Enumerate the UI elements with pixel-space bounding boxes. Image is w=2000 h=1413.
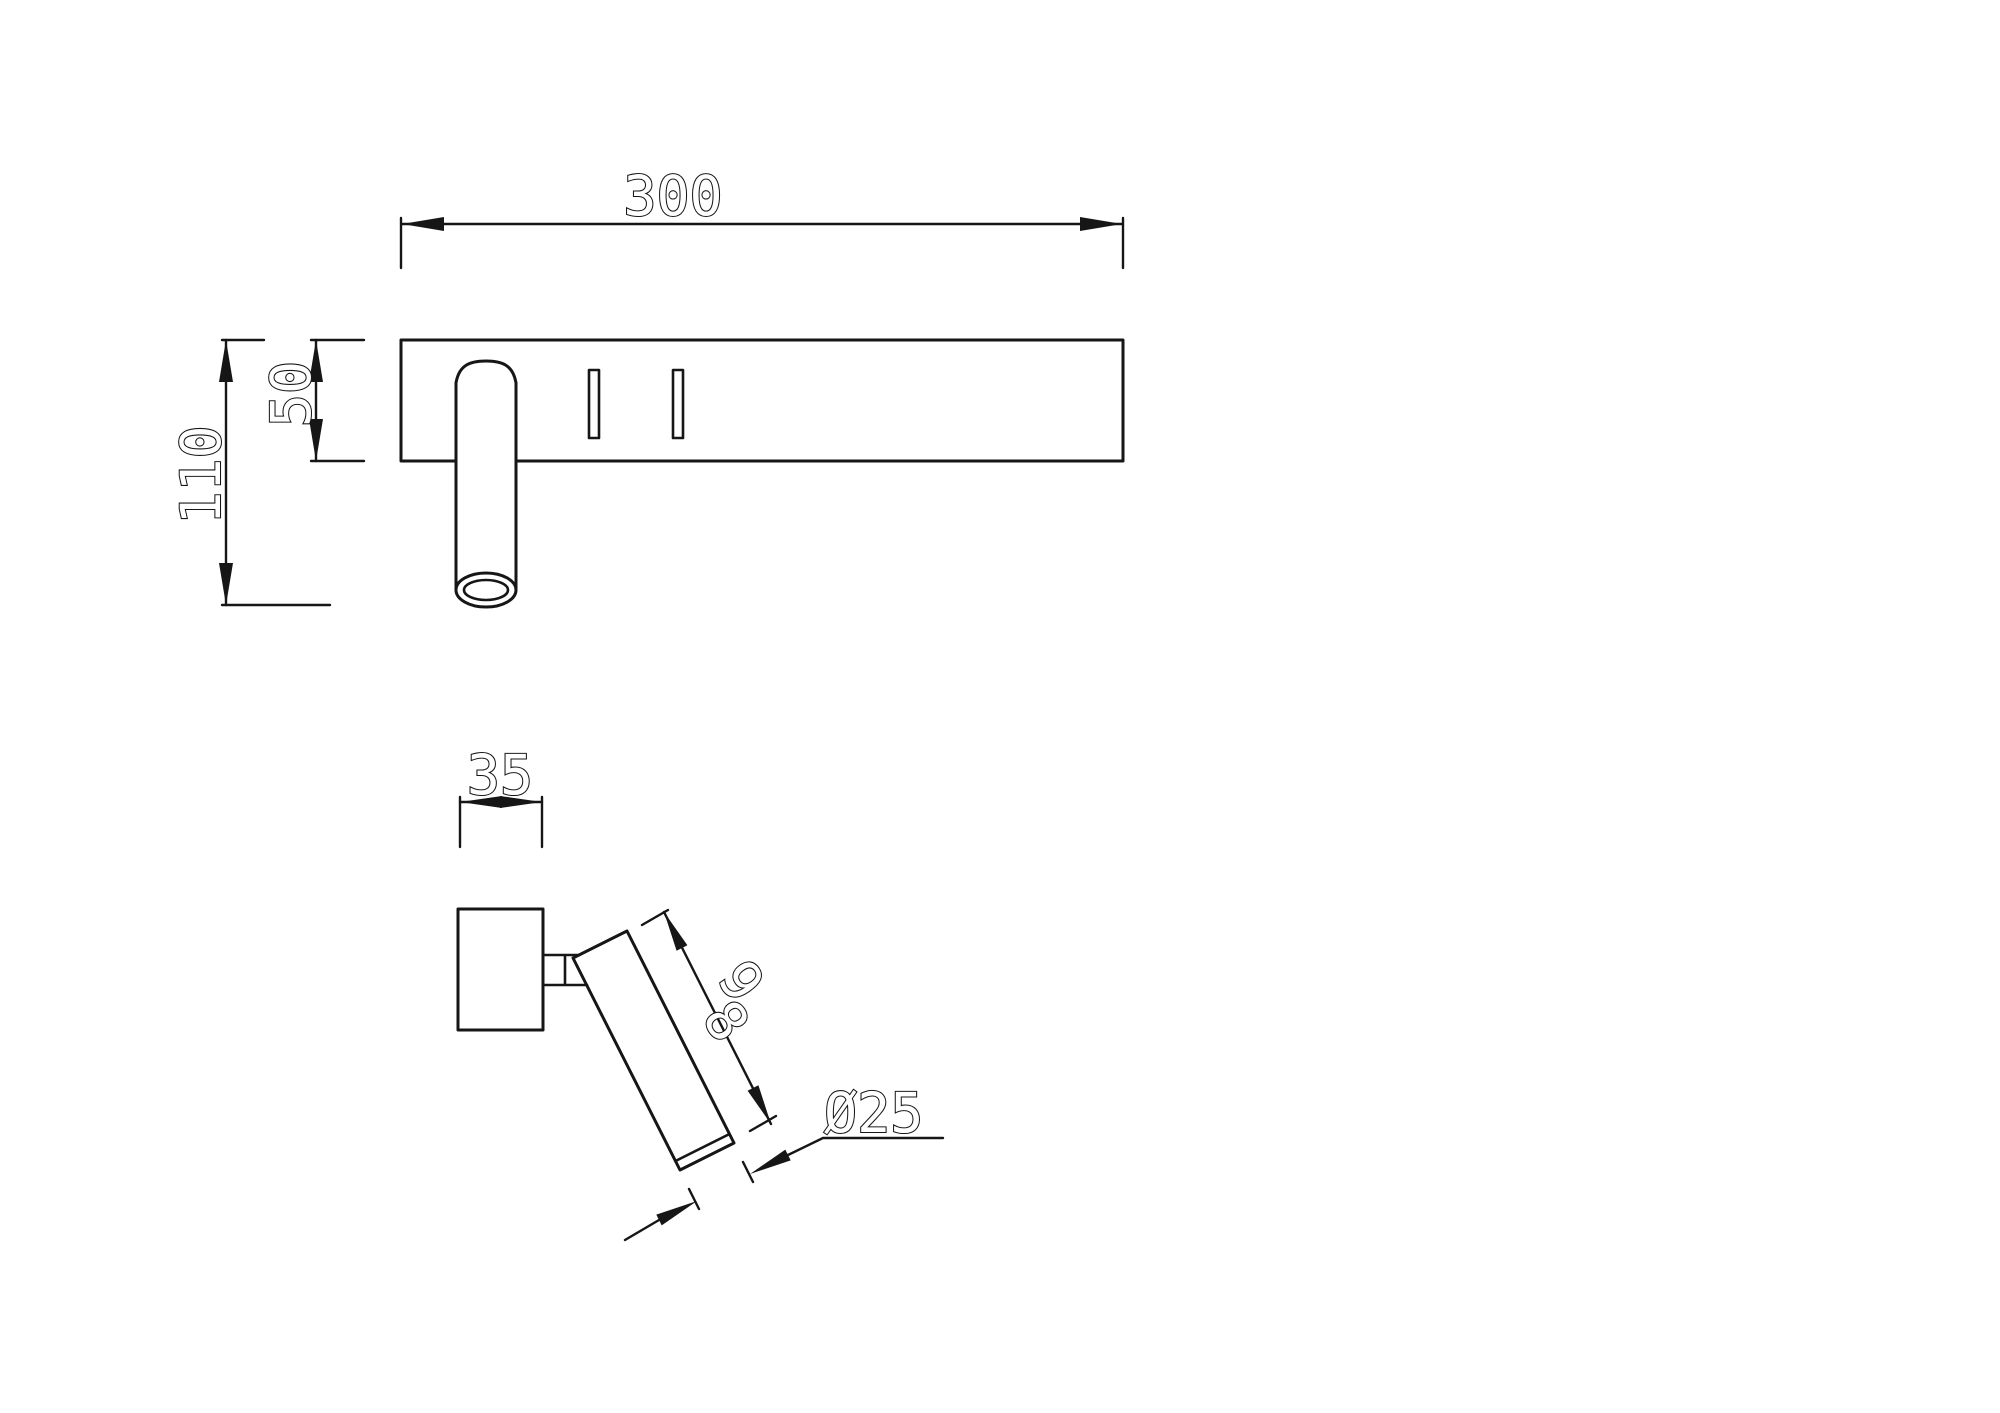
arrowhead-up xyxy=(219,340,233,382)
dim-label-overall-height: 110 xyxy=(169,425,233,524)
dim-tube-length: 9 8 xyxy=(642,910,777,1131)
lens-rim-inner xyxy=(464,580,508,600)
tube-rim-line xyxy=(676,1134,730,1161)
mounting-slot-right xyxy=(673,370,683,438)
dim-plate-height: 50 xyxy=(259,340,364,461)
arrowhead-lower xyxy=(656,1201,697,1225)
dim-label-plate-height: 50 xyxy=(259,361,323,427)
side-view xyxy=(458,909,734,1170)
drawing-svg: 300 110 50 35 9 8 xyxy=(0,0,2000,1413)
dim-plate-width: 300 xyxy=(401,164,1123,268)
mount-bar-side xyxy=(458,909,543,1030)
technical-drawing-canvas: 300 110 50 35 9 8 xyxy=(0,0,2000,1413)
extension-ticks xyxy=(689,1162,753,1209)
dim-label-plate-width: 300 xyxy=(623,164,722,228)
arrowhead-lower xyxy=(748,1085,771,1124)
extension-lines xyxy=(401,218,1123,268)
dim-label-tube-diameter: Ø25 xyxy=(824,1081,923,1145)
arrowhead-right xyxy=(1080,217,1122,231)
mounting-slot-left xyxy=(589,370,599,438)
dim-bar-depth: 35 xyxy=(460,743,542,847)
tube-dome-front xyxy=(456,361,516,383)
arrowhead-upper xyxy=(664,912,687,951)
arrowhead-down xyxy=(219,563,233,605)
arrowhead-left xyxy=(402,217,444,231)
leader-lower xyxy=(625,1220,659,1240)
plate-outline xyxy=(401,340,1123,461)
dim-tube-diameter: Ø25 xyxy=(625,1081,943,1240)
tube-side-lines-front xyxy=(456,383,516,590)
front-view xyxy=(401,340,1123,607)
dim-label-bar-depth: 35 xyxy=(467,743,533,807)
arrowhead-upper xyxy=(750,1150,791,1174)
